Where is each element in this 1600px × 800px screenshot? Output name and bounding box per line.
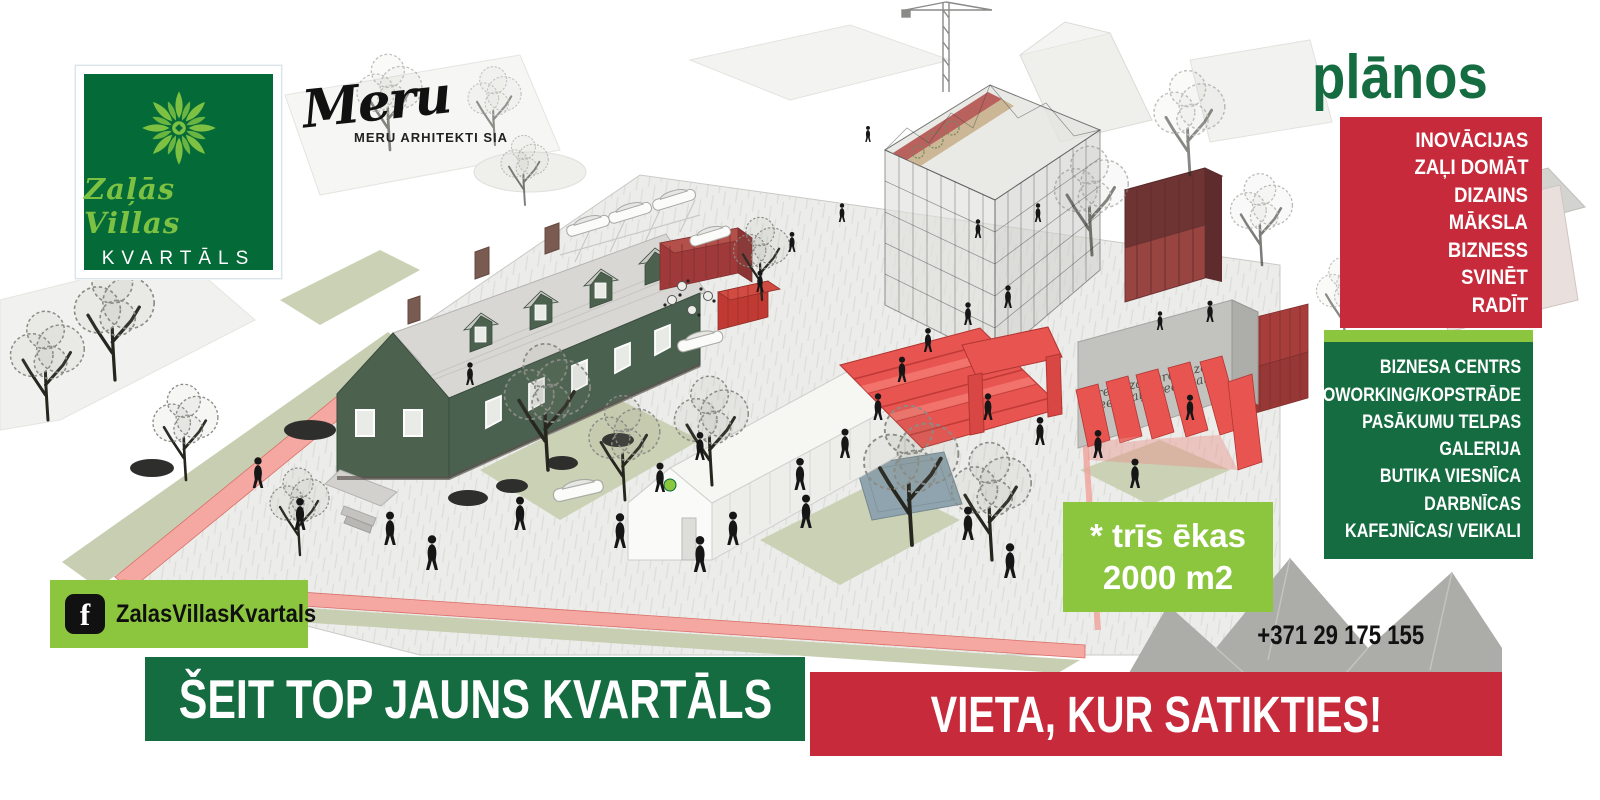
headline-banner-red: VIETA, KUR SATIKTIES!	[810, 672, 1502, 756]
brand-name-caps: KVARTĀLS	[102, 248, 256, 270]
facebook-icon[interactable]: f	[65, 594, 105, 634]
buildings-callout: * trīs ēkas 2000 m2	[1063, 502, 1273, 612]
architect-name: MERU ARHITEKTI SIA	[354, 130, 508, 145]
value-item: RADĪT	[1464, 295, 1528, 316]
poster: green zaļi green zaļi green zaļi green z…	[0, 0, 1600, 800]
callout-line1: * trīs ēkas	[1090, 518, 1246, 554]
phone-number: +371 29 175 155	[1226, 620, 1456, 651]
facebook-link[interactable]: f ZalasVillasKvartals	[50, 580, 308, 648]
amenity-item: BIZNESA CENTRS	[1355, 358, 1521, 377]
value-item: BIZNESS	[1437, 240, 1528, 261]
mandala-icon	[131, 88, 227, 168]
brand-name-script: Zaļās Villas	[84, 172, 273, 240]
brand-logo: Zaļās Villas KVARTĀLS	[84, 74, 273, 270]
value-item: SVINĒT	[1452, 267, 1528, 288]
divider-strip	[1324, 330, 1533, 342]
value-item: INOVĀCIJAS	[1400, 130, 1528, 151]
architect-logo: Meru MERU ARHITEKTI SIA	[302, 72, 522, 152]
amenity-item: KAFEJNĪCAS/ VEIKALI	[1314, 522, 1521, 541]
amenity-item: BUTIKA VIESNĪCA	[1355, 467, 1521, 486]
brand-logo-card: Zaļās Villas KVARTĀLS	[75, 65, 282, 279]
values-panel: INOVĀCIJAS ZAĻI DOMĀT DIZAINS MĀKSLA BIZ…	[1340, 117, 1542, 328]
plans-heading: plānos	[1312, 42, 1512, 113]
construction-crane	[902, 2, 992, 92]
value-item: ZAĻI DOMĀT	[1399, 157, 1528, 178]
facebook-handle[interactable]: ZalasVillasKvartals	[116, 600, 343, 629]
headline-banner-green: ŠEIT TOP JAUNS KVARTĀLS	[145, 657, 805, 741]
value-item: MĀKSLA	[1438, 212, 1528, 233]
amenity-item: GALERIJA	[1425, 440, 1521, 459]
callout-line2: 2000 m2	[1103, 560, 1233, 596]
amenity-item: PASĀKUMU TELPAS	[1334, 413, 1521, 432]
amenities-panel: BIZNESA CENTRS COWORKING/KOPSTRĀDE PASĀK…	[1324, 342, 1533, 559]
amenity-item: DARBNĪCAS	[1407, 495, 1521, 514]
amenity-item: COWORKING/KOPSTRĀDE	[1274, 386, 1521, 405]
value-item: DIZAINS	[1444, 185, 1528, 206]
